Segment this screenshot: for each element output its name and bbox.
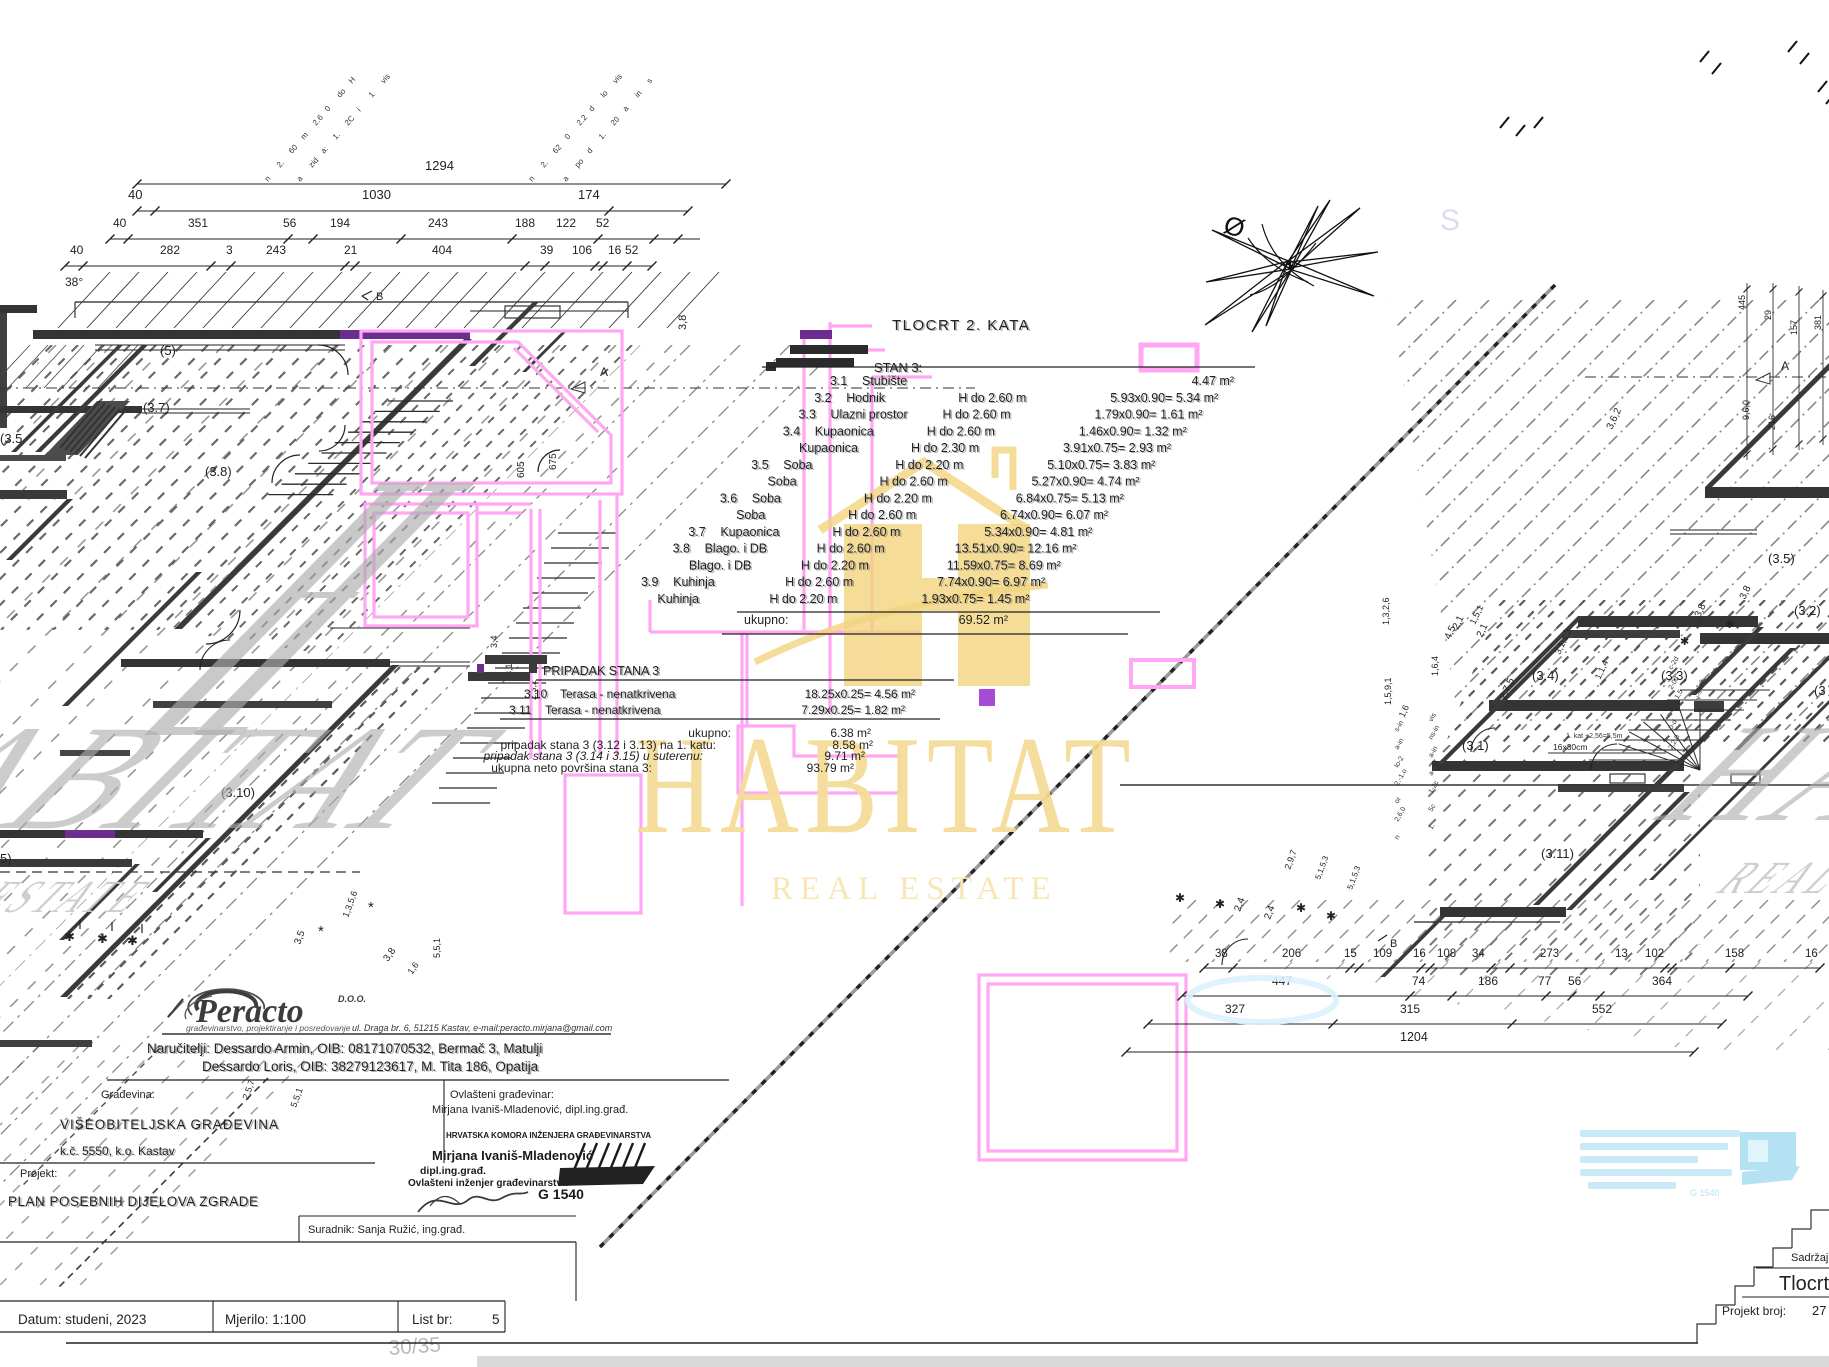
svg-text:H do 2.20 m: H do 2.20 m <box>801 558 869 572</box>
svg-text:16: 16 <box>1805 948 1818 960</box>
svg-text:106: 106 <box>572 243 592 257</box>
svg-text:5.34x0.90= 4.81 m²: 5.34x0.90= 4.81 m² <box>984 525 1092 539</box>
svg-text:H do 2.60 m: H do 2.60 m <box>943 408 1011 422</box>
svg-text:3,4: 3,4 <box>489 635 499 648</box>
svg-text:5.93x0.90= 5.34 m²: 5.93x0.90= 5.34 m² <box>1110 391 1218 405</box>
svg-text:16x30cm: 16x30cm <box>1553 742 1588 752</box>
svg-text:Hodnik: Hodnik <box>846 391 886 405</box>
svg-text:3.5: 3.5 <box>751 458 768 472</box>
svg-text:Ovlašteni građevinar:: Ovlašteni građevinar: <box>450 1089 554 1101</box>
svg-text:1294: 1294 <box>425 158 454 173</box>
svg-text:6.84x0.75= 5.13 m²: 6.84x0.75= 5.13 m² <box>1016 491 1124 505</box>
svg-text:H do 2.60 m: H do 2.60 m <box>927 424 995 438</box>
svg-text:30/35: 30/35 <box>388 1333 442 1360</box>
svg-text:3.4: 3.4 <box>783 424 800 438</box>
svg-text:H do 2.60 m: H do 2.60 m <box>880 475 948 489</box>
svg-text:Kuhinja: Kuhinja <box>657 592 699 606</box>
svg-text:✱: ✱ <box>1175 891 1185 905</box>
svg-text:(3.8): (3.8) <box>205 464 232 479</box>
svg-text:3.7: 3.7 <box>688 525 705 539</box>
svg-text:5: 5 <box>492 1312 500 1327</box>
svg-text:1204: 1204 <box>1400 1030 1428 1044</box>
svg-text:21: 21 <box>344 243 358 257</box>
svg-text:✱: ✱ <box>1725 619 1734 631</box>
svg-text:40: 40 <box>70 243 84 257</box>
svg-text:15: 15 <box>1344 948 1357 960</box>
svg-text:dipl.ing.građ.: dipl.ing.građ. <box>420 1165 486 1177</box>
svg-text:D.O.O.: D.O.O. <box>338 994 366 1004</box>
svg-text:1. kat +2,56=5,5m: 1. kat +2,56=5,5m <box>1566 733 1623 740</box>
svg-text:Mirjana Ivaniš-Mladenović, dip: Mirjana Ivaniš-Mladenović, dipl.ing.građ… <box>432 1104 628 1116</box>
svg-text:122: 122 <box>556 216 576 230</box>
svg-text:40: 40 <box>128 187 142 202</box>
svg-text:102: 102 <box>1645 948 1664 960</box>
svg-text:(5): (5) <box>160 343 176 358</box>
svg-text:16: 16 <box>608 243 622 257</box>
svg-text:A: A <box>600 365 608 379</box>
svg-text:✱: ✱ <box>1215 897 1225 911</box>
svg-text:364: 364 <box>1652 974 1672 988</box>
svg-text:186: 186 <box>1478 974 1498 988</box>
svg-text:Soba: Soba <box>768 475 797 489</box>
svg-text:Ulazni prostor: Ulazni prostor <box>831 408 908 422</box>
svg-text:građevinarstvo, projektiranje: građevinarstvo, projektiranje i posredov… <box>186 1023 351 1033</box>
svg-text:327: 327 <box>1225 1002 1245 1016</box>
svg-text:Kupaonica: Kupaonica <box>720 525 779 539</box>
svg-text:605: 605 <box>516 461 527 478</box>
svg-text:445: 445 <box>1737 295 1747 310</box>
svg-text:(3.5: (3.5 <box>0 431 22 446</box>
svg-text:Mjerilo: 1:100: Mjerilo: 1:100 <box>225 1312 306 1327</box>
svg-text:✱: ✱ <box>1680 636 1689 648</box>
svg-text:H do 2.60 m: H do 2.60 m <box>785 575 853 589</box>
svg-text:3.11: 3.11 <box>509 703 532 717</box>
svg-text:3.3: 3.3 <box>799 408 816 422</box>
svg-text:16: 16 <box>1413 948 1426 960</box>
svg-text:VIŠEOBITELJSKA GRAĐEVINA: VIŠEOBITELJSKA GRAĐEVINA <box>60 1117 279 1132</box>
svg-text:ukupno:: ukupno: <box>744 613 788 627</box>
svg-text:1030: 1030 <box>362 187 391 202</box>
svg-text:ul. Draga br. 6, 51215 Kastav,: ul. Draga br. 6, 51215 Kastav, e-mail:pe… <box>352 1023 613 1033</box>
svg-text:(3.5): (3.5) <box>1768 551 1795 566</box>
svg-text:13.51x0.90= 12.16 m²: 13.51x0.90= 12.16 m² <box>955 542 1077 556</box>
svg-text:6.74x0.90= 6.07 m²: 6.74x0.90= 6.07 m² <box>1000 508 1108 522</box>
svg-text:40: 40 <box>113 216 127 230</box>
svg-text:✱: ✱ <box>64 929 75 944</box>
svg-text:HRVATSKA KOMORA INŽENJERA GRAĐ: HRVATSKA KOMORA INŽENJERA GRAĐEVINARSTVA <box>446 1131 651 1140</box>
svg-text:194: 194 <box>330 216 350 230</box>
svg-text:H do 2.60 m: H do 2.60 m <box>958 391 1026 405</box>
svg-text:52: 52 <box>625 243 639 257</box>
svg-text:Kupaonica: Kupaonica <box>799 441 858 455</box>
svg-text:29: 29 <box>1763 310 1773 320</box>
svg-text:56: 56 <box>283 216 297 230</box>
svg-text:381: 381 <box>1813 315 1823 330</box>
svg-text:4.47 m²: 4.47 m² <box>1192 374 1234 388</box>
svg-text:H do 2.20 m: H do 2.20 m <box>769 592 837 606</box>
svg-text:Dessardo Loris, OIB: 382791236: Dessardo Loris, OIB: 38279123617, M. Tit… <box>202 1059 539 1074</box>
svg-text:7.29x0.25= 1.82 m²: 7.29x0.25= 1.82 m² <box>801 703 905 717</box>
svg-text:3.8: 3.8 <box>673 542 690 556</box>
svg-text:H do 2.60 m: H do 2.60 m <box>817 542 885 556</box>
svg-text:(3.2): (3.2) <box>1794 603 1821 618</box>
svg-text:3.2: 3.2 <box>814 391 831 405</box>
svg-text:18.25x0.25= 4.56 m²: 18.25x0.25= 4.56 m² <box>805 687 915 701</box>
svg-text:404: 404 <box>432 243 452 257</box>
svg-text:List br:: List br: <box>412 1312 453 1327</box>
svg-text:1.79x0.90= 1.61 m²: 1.79x0.90= 1.61 m² <box>1094 408 1202 422</box>
svg-text:S: S <box>1440 204 1460 237</box>
svg-text:5,5,1: 5,5,1 <box>432 938 442 958</box>
svg-text:158: 158 <box>1725 948 1744 960</box>
svg-text:Kupaonica: Kupaonica <box>815 424 874 438</box>
svg-text:Kuhinja: Kuhinja <box>673 575 715 589</box>
svg-text:315: 315 <box>1400 1002 1420 1016</box>
svg-text:9,6,0: 9,6,0 <box>1741 400 1751 420</box>
svg-text:k.č. 5550, k.o. Kastav: k.č. 5550, k.o. Kastav <box>60 1144 175 1158</box>
svg-text:H do 2.60 m: H do 2.60 m <box>832 525 900 539</box>
svg-text:38°: 38° <box>65 275 83 289</box>
svg-text:H do 2.20 m: H do 2.20 m <box>864 491 932 505</box>
svg-text:Građevina:: Građevina: <box>101 1089 155 1101</box>
svg-text:Suradnik: Sanja Ružić, ing.gra: Suradnik: Sanja Ružić, ing.građ. <box>308 1224 465 1236</box>
svg-text:7.74x0.90= 6.97 m²: 7.74x0.90= 6.97 m² <box>937 575 1045 589</box>
svg-text:5.27x0.90= 4.74 m²: 5.27x0.90= 4.74 m² <box>1031 475 1139 489</box>
svg-text:G 1540: G 1540 <box>538 1186 584 1202</box>
svg-text:243: 243 <box>428 216 448 230</box>
svg-text:216: 216 <box>1767 415 1777 430</box>
svg-text:69.52 m²: 69.52 m² <box>959 613 1008 627</box>
svg-text:3.9: 3.9 <box>641 575 658 589</box>
svg-text:Naručitelji: Dessardo Armin, O: Naručitelji: Dessardo Armin, OIB: 081710… <box>147 1041 542 1056</box>
svg-text:Projekt:: Projekt: <box>20 1168 57 1180</box>
svg-text:1,3,2,6: 1,3,2,6 <box>1381 597 1391 625</box>
svg-text:552: 552 <box>1592 1002 1612 1016</box>
svg-text:52: 52 <box>596 216 610 230</box>
svg-text:Blago. i DB: Blago. i DB <box>689 558 752 572</box>
svg-text:TLOCRT 2. KATA: TLOCRT 2. KATA <box>892 317 1030 334</box>
svg-text:*: * <box>318 923 324 940</box>
svg-text:1,5,9,1: 1,5,9,1 <box>1383 677 1393 705</box>
svg-text:174: 174 <box>578 187 600 202</box>
svg-text:H do 2.20 m: H do 2.20 m <box>895 458 963 472</box>
svg-text:38: 38 <box>1215 948 1228 960</box>
svg-text:351: 351 <box>188 216 208 230</box>
svg-text:1.46x0.90= 1.32 m²: 1.46x0.90= 1.32 m² <box>1079 424 1187 438</box>
svg-text:A: A <box>1781 359 1789 373</box>
svg-text:34: 34 <box>1472 948 1485 960</box>
svg-text:Projekt broj:: Projekt broj: <box>1722 1304 1786 1318</box>
svg-text:243: 243 <box>266 243 286 257</box>
svg-text:✱: ✱ <box>1296 901 1306 915</box>
svg-text:675: 675 <box>548 453 559 470</box>
svg-text:5.10x0.75= 3.83 m²: 5.10x0.75= 3.83 m² <box>1047 458 1155 472</box>
svg-text:(3.7): (3.7) <box>143 400 170 415</box>
svg-text:Tlocrt 2 k: Tlocrt 2 k <box>1779 1273 1829 1295</box>
svg-text:Soba: Soba <box>783 458 812 472</box>
svg-text:ukupna neto površina stana 3:: ukupna neto površina stana 3: <box>491 761 652 775</box>
svg-text:74: 74 <box>1412 974 1426 988</box>
svg-text:G 1540: G 1540 <box>1690 1188 1720 1198</box>
svg-text:3,8: 3,8 <box>677 315 689 330</box>
svg-text:H do 2.60 m: H do 2.60 m <box>848 508 916 522</box>
svg-text:3.10: 3.10 <box>524 687 548 701</box>
svg-text:PLAN POSEBNIH DIJELOVA ZGRADE: PLAN POSEBNIH DIJELOVA ZGRADE <box>8 1194 259 1209</box>
svg-text:Sadržaj:: Sadržaj: <box>1791 1252 1829 1264</box>
svg-text:1,6,4: 1,6,4 <box>1430 656 1440 676</box>
svg-text:REAL ESTATE: REAL ESTATE <box>771 871 1058 907</box>
svg-text:188: 188 <box>515 216 535 230</box>
svg-text:Terasa - nenatkrivena: Terasa - nenatkrivena <box>560 687 676 701</box>
svg-text:Blago. i DB: Blago. i DB <box>705 542 768 556</box>
svg-text:Datum: studeni, 2023: Datum: studeni, 2023 <box>18 1312 146 1327</box>
svg-text:282: 282 <box>160 243 180 257</box>
svg-text:27: 27 <box>1812 1303 1826 1318</box>
svg-text:93.79 m²: 93.79 m² <box>807 761 854 775</box>
svg-text:Terasa - nenatkrivena: Terasa - nenatkrivena <box>545 703 661 717</box>
svg-text:1.93x0.75= 1.45 m²: 1.93x0.75= 1.45 m² <box>921 592 1029 606</box>
svg-text:157: 157 <box>1789 320 1799 335</box>
svg-text:Soba: Soba <box>752 491 781 505</box>
svg-text:PRIPADAK STANA 3: PRIPADAK STANA 3 <box>543 664 659 678</box>
svg-text:3: 3 <box>226 243 233 257</box>
svg-text:(3.11): (3.11) <box>1541 846 1574 861</box>
svg-text:(3.1): (3.1) <box>1462 738 1489 753</box>
svg-text:39: 39 <box>540 243 554 257</box>
svg-text:Mirjana Ivaniš-Mladenović: Mirjana Ivaniš-Mladenović <box>432 1148 593 1163</box>
svg-text:H do 2.30 m: H do 2.30 m <box>911 441 979 455</box>
svg-text:108: 108 <box>1437 948 1456 960</box>
svg-text:✱: ✱ <box>97 931 108 946</box>
svg-text:3.91x0.75= 2.93 m²: 3.91x0.75= 2.93 m² <box>1063 441 1171 455</box>
svg-text:Soba: Soba <box>736 508 765 522</box>
svg-text:11.59x0.75= 8.69 m²: 11.59x0.75= 8.69 m² <box>947 558 1061 572</box>
svg-text:(3.4): (3.4) <box>1532 668 1559 683</box>
svg-text:Stubište: Stubište <box>862 374 907 388</box>
svg-text:*: * <box>368 899 374 916</box>
svg-text:13: 13 <box>1615 948 1628 960</box>
svg-text:✱: ✱ <box>127 933 138 948</box>
svg-text:3.6: 3.6 <box>720 491 737 505</box>
svg-text:206: 206 <box>1282 948 1301 960</box>
svg-text:77: 77 <box>1538 974 1552 988</box>
svg-text:109: 109 <box>1373 948 1392 960</box>
svg-text:56: 56 <box>1568 974 1582 988</box>
svg-text:3.1: 3.1 <box>830 374 847 388</box>
svg-text:✱: ✱ <box>1326 909 1336 923</box>
svg-text:273: 273 <box>1540 948 1559 960</box>
